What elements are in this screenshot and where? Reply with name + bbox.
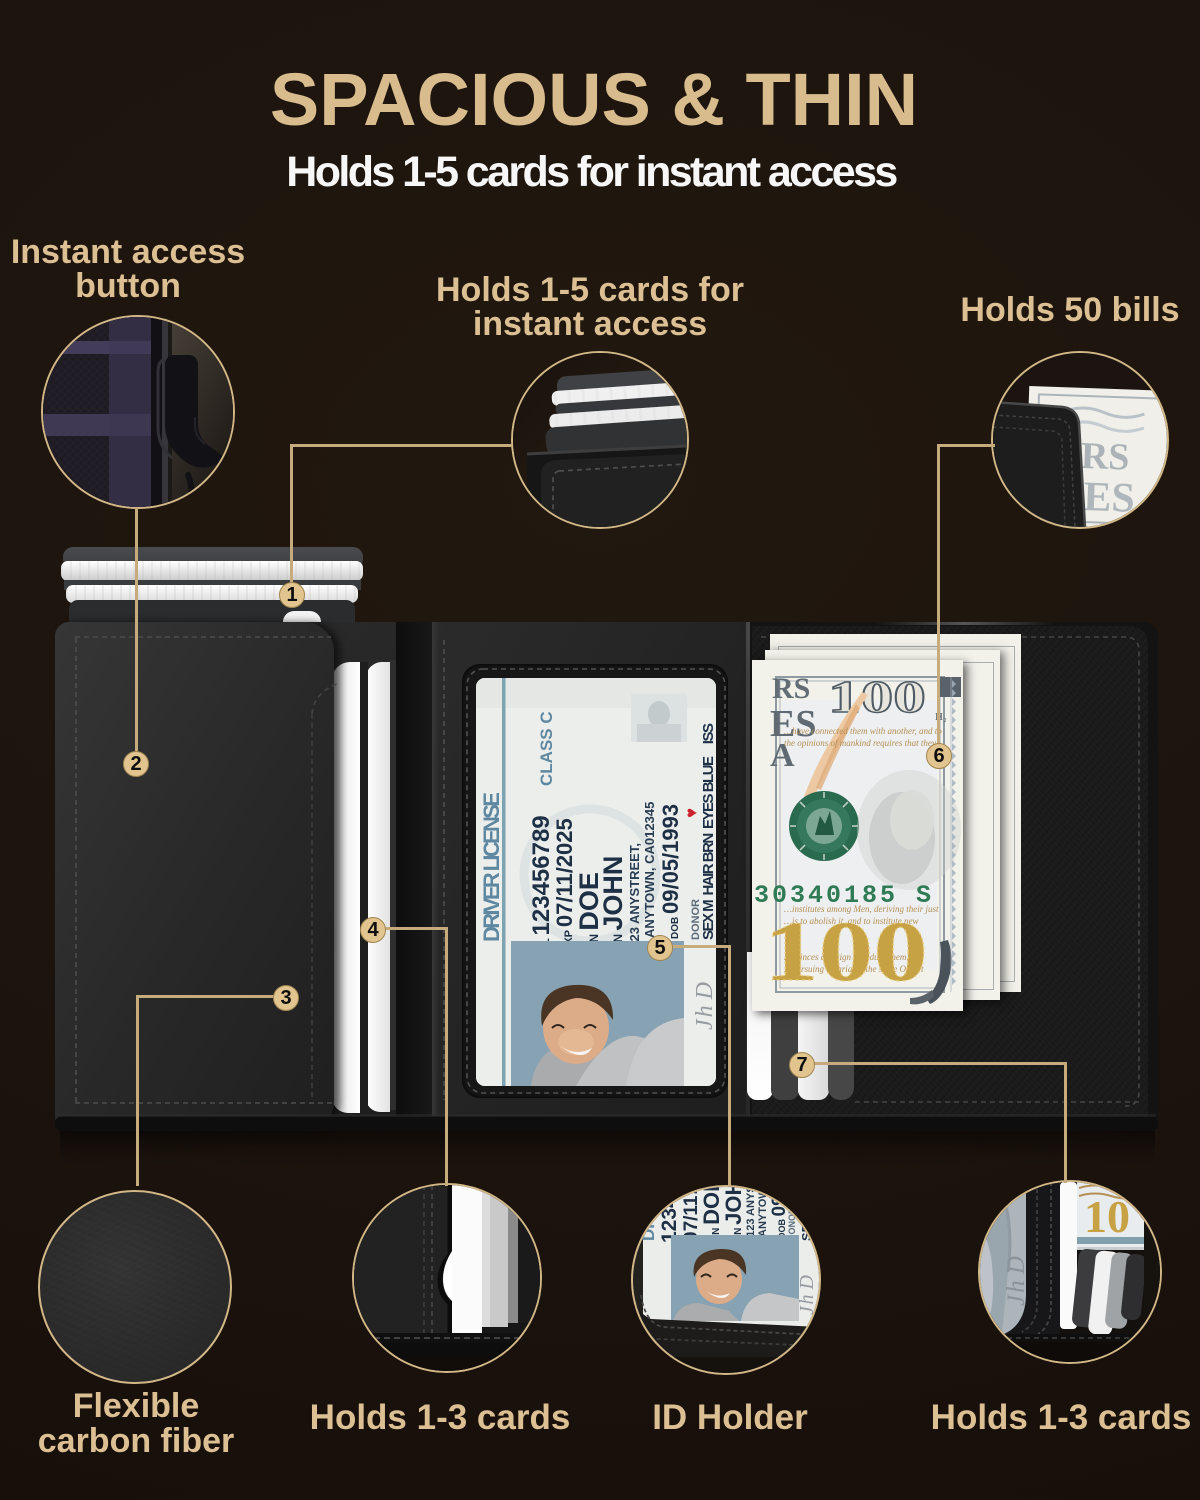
- svg-text:ES: ES: [1083, 474, 1136, 522]
- svg-text:J h D: J h D: [796, 1274, 818, 1315]
- svg-text:the opinions of mankind requir: the opinions of mankind requires that th…: [784, 738, 936, 748]
- svg-text:…have connected them with anot: …have connected them with another, and t…: [784, 726, 942, 736]
- svg-text:SEX M…: SEX M…: [799, 1188, 814, 1241]
- svg-text:ANYTOWN, C…: ANYTOWN, C…: [757, 1187, 769, 1237]
- svg-text:0123 ANYSTRE…: 0123 ANYSTRE…: [745, 1187, 757, 1243]
- svg-text:100: 100: [764, 904, 928, 999]
- svg-text:12345…: 12345…: [658, 1187, 681, 1243]
- svg-text:RS: RS: [1080, 435, 1130, 479]
- svg-text:100: 100: [828, 672, 926, 722]
- svg-text:DRIVE…: DRIVE…: [639, 1187, 658, 1241]
- svg-text:♥: ♥: [784, 1201, 799, 1209]
- svg-text:10: 10: [1084, 1191, 1130, 1242]
- svg-text:RS: RS: [772, 672, 810, 705]
